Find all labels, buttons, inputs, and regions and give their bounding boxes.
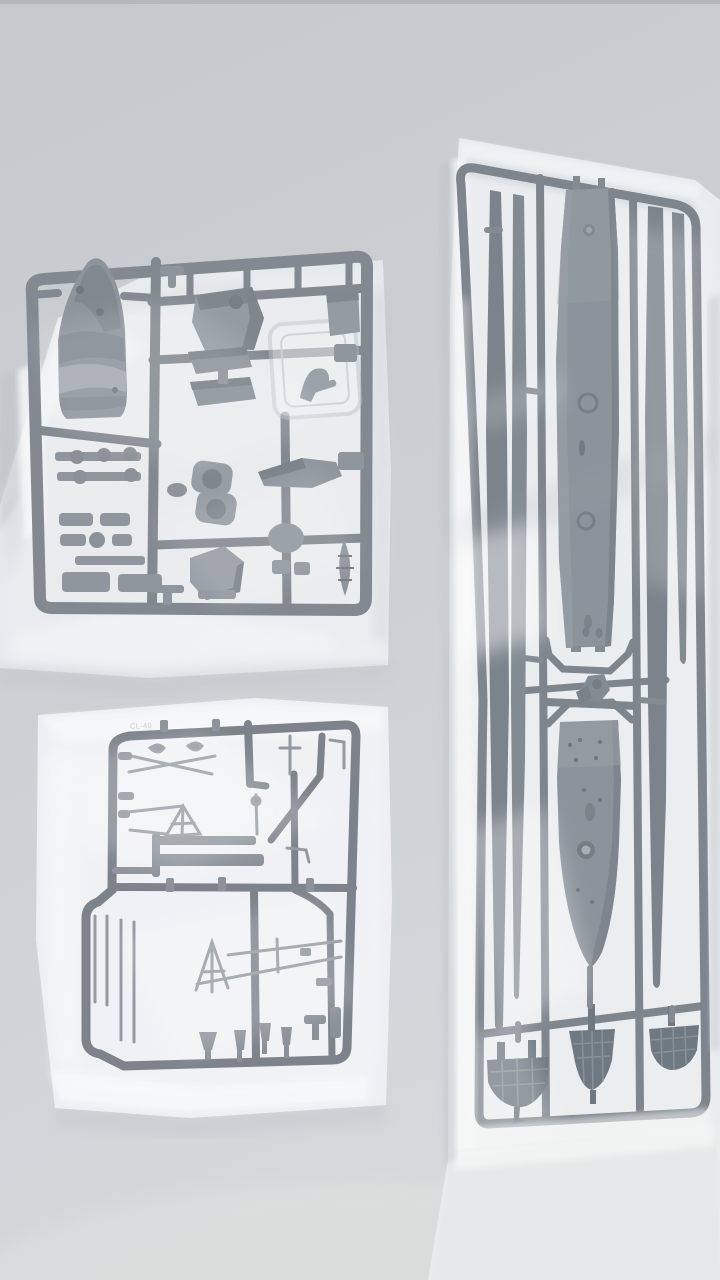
svg-text:CL-49: CL-49 (130, 721, 153, 731)
